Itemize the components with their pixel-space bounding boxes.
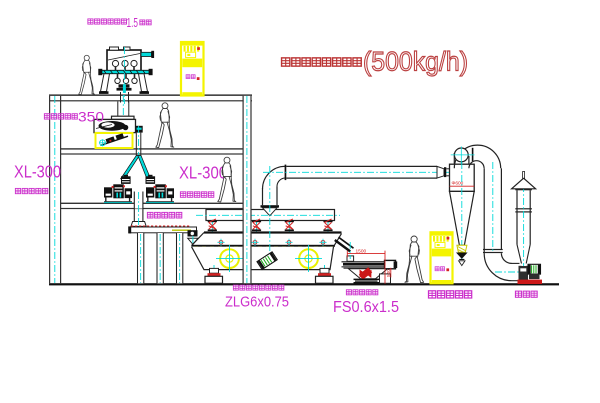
svg-text:540: 540 (386, 269, 391, 277)
svg-text:ZLG6x0.75: ZLG6x0.75 (225, 294, 289, 311)
svg-text:1.5: 1.5 (127, 16, 139, 30)
svg-text:1500: 1500 (356, 248, 367, 254)
svg-text:(500kg/h): (500kg/h) (363, 47, 468, 77)
svg-text:XL-300: XL-300 (14, 161, 61, 181)
svg-text:350: 350 (78, 110, 104, 125)
svg-text:XL-300: XL-300 (179, 162, 227, 182)
svg-text:FS0.6x1.5: FS0.6x1.5 (333, 299, 399, 316)
